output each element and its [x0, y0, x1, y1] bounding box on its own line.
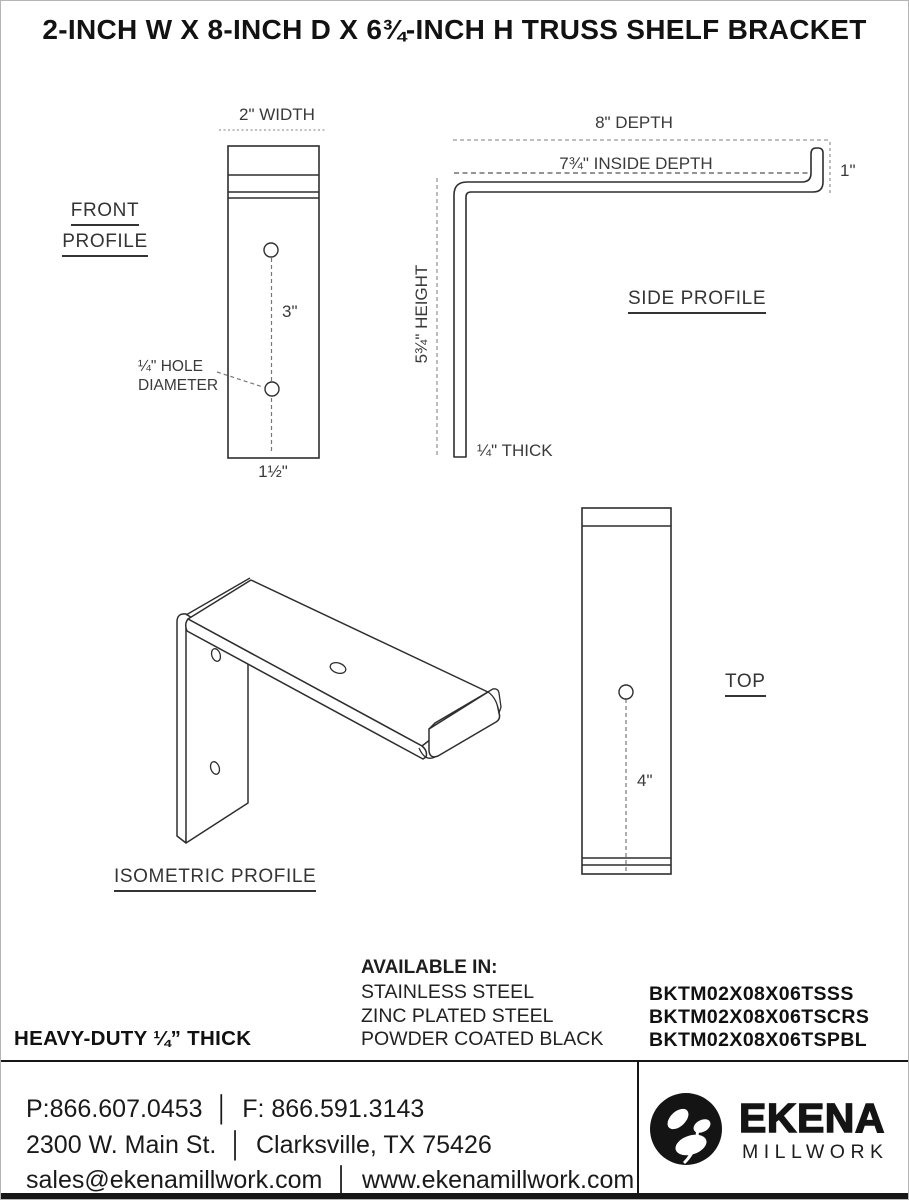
footer-separator-1: │ [215, 1095, 231, 1124]
finish-item-powder: POWDER COATED BLACK [361, 1028, 603, 1051]
front-hole-upper [264, 243, 278, 257]
drawing-sheet: 2-INCH W X 8-INCH D X 6¾-INCH H TRUSS SH… [0, 0, 909, 1200]
side-profile-title: SIDE PROFILE [628, 288, 766, 314]
top-view-drawing [582, 508, 671, 874]
side-lip-height-dim-label: 1" [840, 161, 856, 181]
front-hole-lower [265, 382, 279, 396]
sku-zinc: BKTM02X08X06TSCRS [649, 1006, 869, 1029]
footer-separator-3: │ [334, 1166, 350, 1195]
footer-street: 2300 W. Main St. [26, 1131, 216, 1160]
isometric-profile-title: ISOMETRIC PROFILE [114, 866, 316, 892]
footer-email: sales@ekenamillwork.com [26, 1166, 322, 1195]
footer-phone: P:866.607.0453 [26, 1095, 203, 1124]
front-profile-title: FRONT PROFILE [45, 200, 165, 257]
front-profile-title-line2: PROFILE [62, 231, 148, 257]
footer-separator-2: │ [228, 1131, 244, 1160]
hole-diameter-note: ¼" HOLE DIAMETER [138, 357, 218, 395]
side-inside-depth-dim-label: 7¾" INSIDE DEPTH [536, 154, 736, 174]
top-hole [619, 685, 633, 699]
isometric-drawing [177, 578, 501, 843]
brand-logo-mark [648, 1091, 726, 1169]
footer-city: Clarksville, TX 75426 [256, 1131, 492, 1160]
brand-subtitle: MILLWORK [742, 1141, 889, 1164]
footer-fax: F: 866.591.3143 [242, 1095, 424, 1124]
footer-email-web-row: sales@ekenamillwork.com │ www.ekenamillw… [26, 1166, 634, 1195]
side-depth-dim-label: 8" DEPTH [564, 113, 704, 133]
front-hole-spacing-dim-label: 3" [282, 302, 298, 322]
front-profile-title-line1: FRONT [71, 200, 139, 226]
iso-plate-front-face [186, 628, 248, 843]
footer-address-row: 2300 W. Main St. │ Clarksville, TX 75426 [26, 1131, 492, 1160]
footer-phone-fax-row: P:866.607.0453 │ F: 866.591.3143 [26, 1095, 424, 1124]
available-in-heading: AVAILABLE IN: [361, 957, 498, 979]
hole-diameter-note-line1: ¼" HOLE [138, 357, 218, 376]
top-hole-offset-dim-label: 4" [637, 771, 653, 791]
sku-powder: BKTM02X08X06TSPBL [649, 1029, 867, 1052]
finish-item-zinc: ZINC PLATED STEEL [361, 1005, 554, 1028]
front-profile-drawing [217, 130, 326, 458]
brand-name: EKENA [739, 1095, 885, 1142]
sku-stainless: BKTM02X08X06TSSS [649, 983, 854, 1006]
finish-item-stainless: STAINLESS STEEL [361, 981, 534, 1004]
top-view-title: TOP [725, 671, 766, 697]
side-thickness-dim-label: ¼" THICK [477, 441, 553, 461]
footer-website: www.ekenamillwork.com [362, 1166, 634, 1195]
footer-vertical-divider [637, 1060, 639, 1193]
footer-divider-line [1, 1060, 909, 1062]
heavy-duty-note: HEAVY-DUTY ¼” THICK [14, 1027, 251, 1051]
side-height-dim-label: 5¾" HEIGHT [412, 254, 432, 374]
front-width-dim-label: 2" WIDTH [227, 105, 327, 125]
hole-diameter-note-line2: DIAMETER [138, 376, 218, 395]
front-bottom-offset-dim-label: 1½" [243, 462, 303, 482]
